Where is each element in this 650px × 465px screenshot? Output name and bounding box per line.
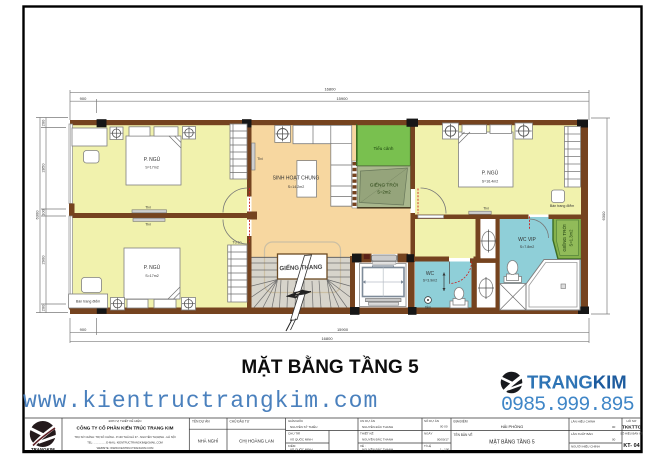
svg-text:200: 200: [41, 304, 46, 311]
svg-text:S=14.2m2: S=14.2m2: [288, 185, 304, 189]
svg-text:WC: WC: [426, 271, 435, 277]
svg-text:P. NGỦ: P. NGỦ: [144, 156, 161, 163]
svg-text:TÊN BẢN VẼ: TÊN BẢN VẼ: [454, 432, 473, 437]
svg-text:SỐ DỰ ÁN: SỐ DỰ ÁN: [424, 418, 439, 423]
svg-text:NGÀY: NGÀY: [424, 432, 433, 436]
svg-text:WEBSITE: WWW.KIENTRUCTRANGKIM.: WEBSITE: WWW.KIENTRUCTRANGKIM.COM: [97, 446, 154, 450]
svg-text:TEL: ................ E-MAI: TEL: ................ E-MAIL: KIENTRUCTR…: [87, 441, 163, 445]
svg-text:TKKTTC: TKKTTC: [622, 425, 642, 431]
svg-text:200: 200: [41, 119, 46, 126]
svg-text:15900: 15900: [336, 96, 348, 101]
svg-text:NGUYỄN SỸ THIỀU: NGUYỄN SỸ THIỀU: [290, 424, 317, 429]
svg-text:Tủ áo: Tủ áo: [232, 241, 241, 245]
svg-text:LẦN XUẤT BẢN: LẦN XUẤT BẢN: [571, 431, 593, 436]
svg-text:Bàn trang điểm: Bàn trang điểm: [550, 204, 574, 208]
svg-text:900: 900: [80, 96, 87, 101]
svg-text:TÊN DỰ ÁN: TÊN DỰ ÁN: [192, 419, 210, 424]
svg-text:SINH HOẠT CHUNG: SINH HOẠT CHUNG: [273, 176, 320, 182]
svg-text:Bàn trang điểm: Bàn trang điểm: [76, 300, 100, 304]
svg-text:MẶT BẰNG TẦNG 5: MẶT BẰNG TẦNG 5: [489, 438, 535, 446]
svg-text:WC VIP: WC VIP: [518, 237, 536, 243]
svg-text:CN DỰ ÁN: CN DỰ ÁN: [360, 419, 375, 423]
svg-text:15900: 15900: [337, 327, 349, 332]
svg-text:S=2m2: S=2m2: [377, 190, 391, 195]
svg-text:P. NGỦ: P. NGỦ: [144, 264, 161, 271]
svg-text:S=16.4m2: S=16.4m2: [482, 180, 498, 184]
svg-text:NHÀ NGHỈ: NHÀ NGHỈ: [198, 439, 219, 444]
svg-text:100: 100: [41, 208, 46, 215]
svg-text:NGUYỄN ĐẮC THANH: NGUYỄN ĐẮC THANH: [362, 424, 393, 429]
svg-text:GIẾNG TRỜI: GIẾNG TRỜI: [561, 224, 567, 251]
svg-text:HẢI PHÒNG: HẢI PHÒNG: [501, 424, 523, 429]
svg-text:S=3.9m2: S=3.9m2: [423, 279, 437, 283]
svg-text:LẦN HIỆU CHỈNH: LẦN HIỆU CHỈNH: [571, 419, 595, 424]
svg-text:00: 00: [612, 438, 616, 442]
svg-text:ĐỊA ĐIỂM: ĐỊA ĐIỂM: [454, 419, 468, 424]
svg-text:MẶT BẰNG TẦNG 5: MẶT BẰNG TẦNG 5: [241, 356, 419, 378]
svg-text:Tivi: Tivi: [483, 207, 489, 211]
svg-text:www.kientructrangkim.com: www.kientructrangkim.com: [23, 388, 378, 414]
svg-text:16800: 16800: [324, 87, 336, 92]
svg-text:HỒ SƠ: HỒ SƠ: [627, 418, 637, 423]
svg-text:2850: 2850: [41, 163, 46, 173]
svg-text:NGUYỄN ĐẮC THANH: NGUYỄN ĐẮC THANH: [362, 447, 393, 452]
svg-text:CHỦ ĐẦU TƯ: CHỦ ĐẦU TƯ: [230, 419, 250, 424]
svg-text:S=1.3m2: S=1.3m2: [569, 229, 574, 247]
svg-text:00/00/17: 00/00/17: [437, 438, 449, 442]
svg-text:Tivi: Tivi: [145, 222, 151, 226]
svg-text:00: 00: [612, 425, 616, 429]
svg-text:CÔNG TY CỔ PHẦN KIẾN TRÚC TRAN: CÔNG TY CỔ PHẦN KIẾN TRÚC TRANG KIM: [77, 424, 174, 431]
svg-text:ĐƠN VỊ THIẾT KẾ HIỆN: ĐƠN VỊ THIẾT KẾ HIỆN: [109, 418, 142, 423]
svg-text:NGUYỄN ĐẮC THANH: NGUYỄN ĐẮC THANH: [362, 437, 393, 442]
svg-text:TRANGKIM: TRANGKIM: [31, 447, 55, 452]
svg-text:tắm: tắm: [425, 305, 431, 310]
svg-text:Tivi: Tivi: [145, 206, 151, 210]
svg-text:P. NGỦ: P. NGỦ: [482, 170, 499, 177]
svg-text:0985.999.895: 0985.999.895: [501, 394, 634, 417]
svg-text:CHỊ HOÀNG LAN: CHỊ HOÀNG LAN: [239, 439, 274, 444]
svg-text:S=7.8m2: S=7.8m2: [520, 245, 534, 249]
svg-text:16800: 16800: [321, 336, 333, 341]
svg-text:900: 900: [80, 327, 87, 332]
svg-text:CHỦ TRÌ: CHỦ TRÌ: [288, 431, 300, 436]
svg-text:S=17m2: S=17m2: [145, 274, 159, 278]
svg-text:2900: 2900: [41, 255, 46, 265]
svg-text:TỈ LỆ: TỈ LỆ: [424, 443, 431, 448]
svg-text:00 00: 00 00: [440, 425, 448, 429]
svg-text:VŨ QUỐC MINH: VŨ QUỐC MINH: [290, 447, 313, 452]
svg-text:SỐ HIỆU BẢN VẼ: SỐ HIỆU BẢN VẼ: [620, 431, 643, 436]
svg-text:NGƯỜI HIỆU CHỈNH: NGƯỜI HIỆU CHỈNH: [571, 444, 600, 449]
svg-text:6300: 6300: [601, 211, 606, 221]
svg-text:Tiểu cảnh: Tiểu cảnh: [373, 145, 393, 151]
svg-text:VŨ QUỐC MINH: VŨ QUỐC MINH: [290, 437, 313, 442]
svg-text:GIẾNG TRỜI: GIẾNG TRỜI: [370, 182, 399, 189]
svg-text:Tivi: Tivi: [257, 157, 263, 161]
svg-text:S=17m2: S=17m2: [145, 166, 159, 170]
svg-text:6300: 6300: [35, 210, 40, 220]
svg-text:GIÁM ĐỐC: GIÁM ĐỐC: [288, 418, 304, 423]
svg-text:1 : 100: 1 : 100: [440, 448, 450, 452]
svg-text:THIẾT KẾ: THIẾT KẾ: [360, 431, 373, 436]
svg-text:KT- 04: KT- 04: [623, 443, 639, 449]
svg-text:TRANGKIM: TRANGKIM: [527, 372, 627, 393]
